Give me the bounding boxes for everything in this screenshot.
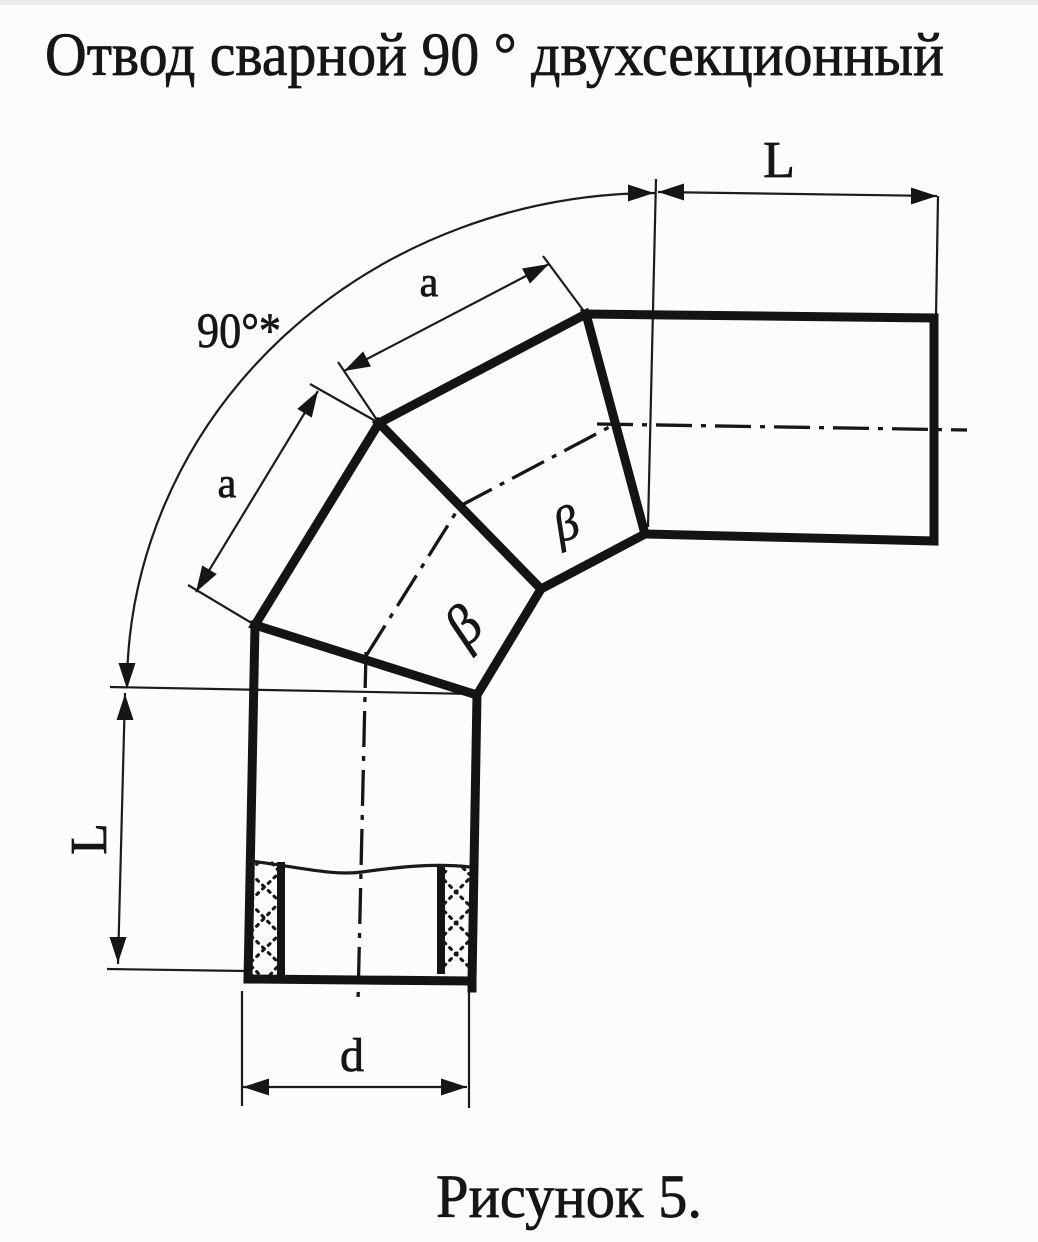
svg-text:d: d	[340, 1029, 364, 1082]
svg-text:Рисунок 5.: Рисунок 5.	[436, 1164, 702, 1231]
svg-text:Отвод сварной 90 ° двухсекцион: Отвод сварной 90 ° двухсекционный	[45, 22, 944, 89]
svg-text:a: a	[420, 260, 439, 306]
svg-text:a: a	[218, 461, 237, 507]
svg-text:90°*: 90°*	[197, 302, 281, 358]
svg-text:β: β	[545, 495, 586, 553]
svg-text:L: L	[763, 132, 795, 189]
svg-text:L: L	[61, 823, 118, 855]
svg-text:β: β	[431, 594, 495, 659]
